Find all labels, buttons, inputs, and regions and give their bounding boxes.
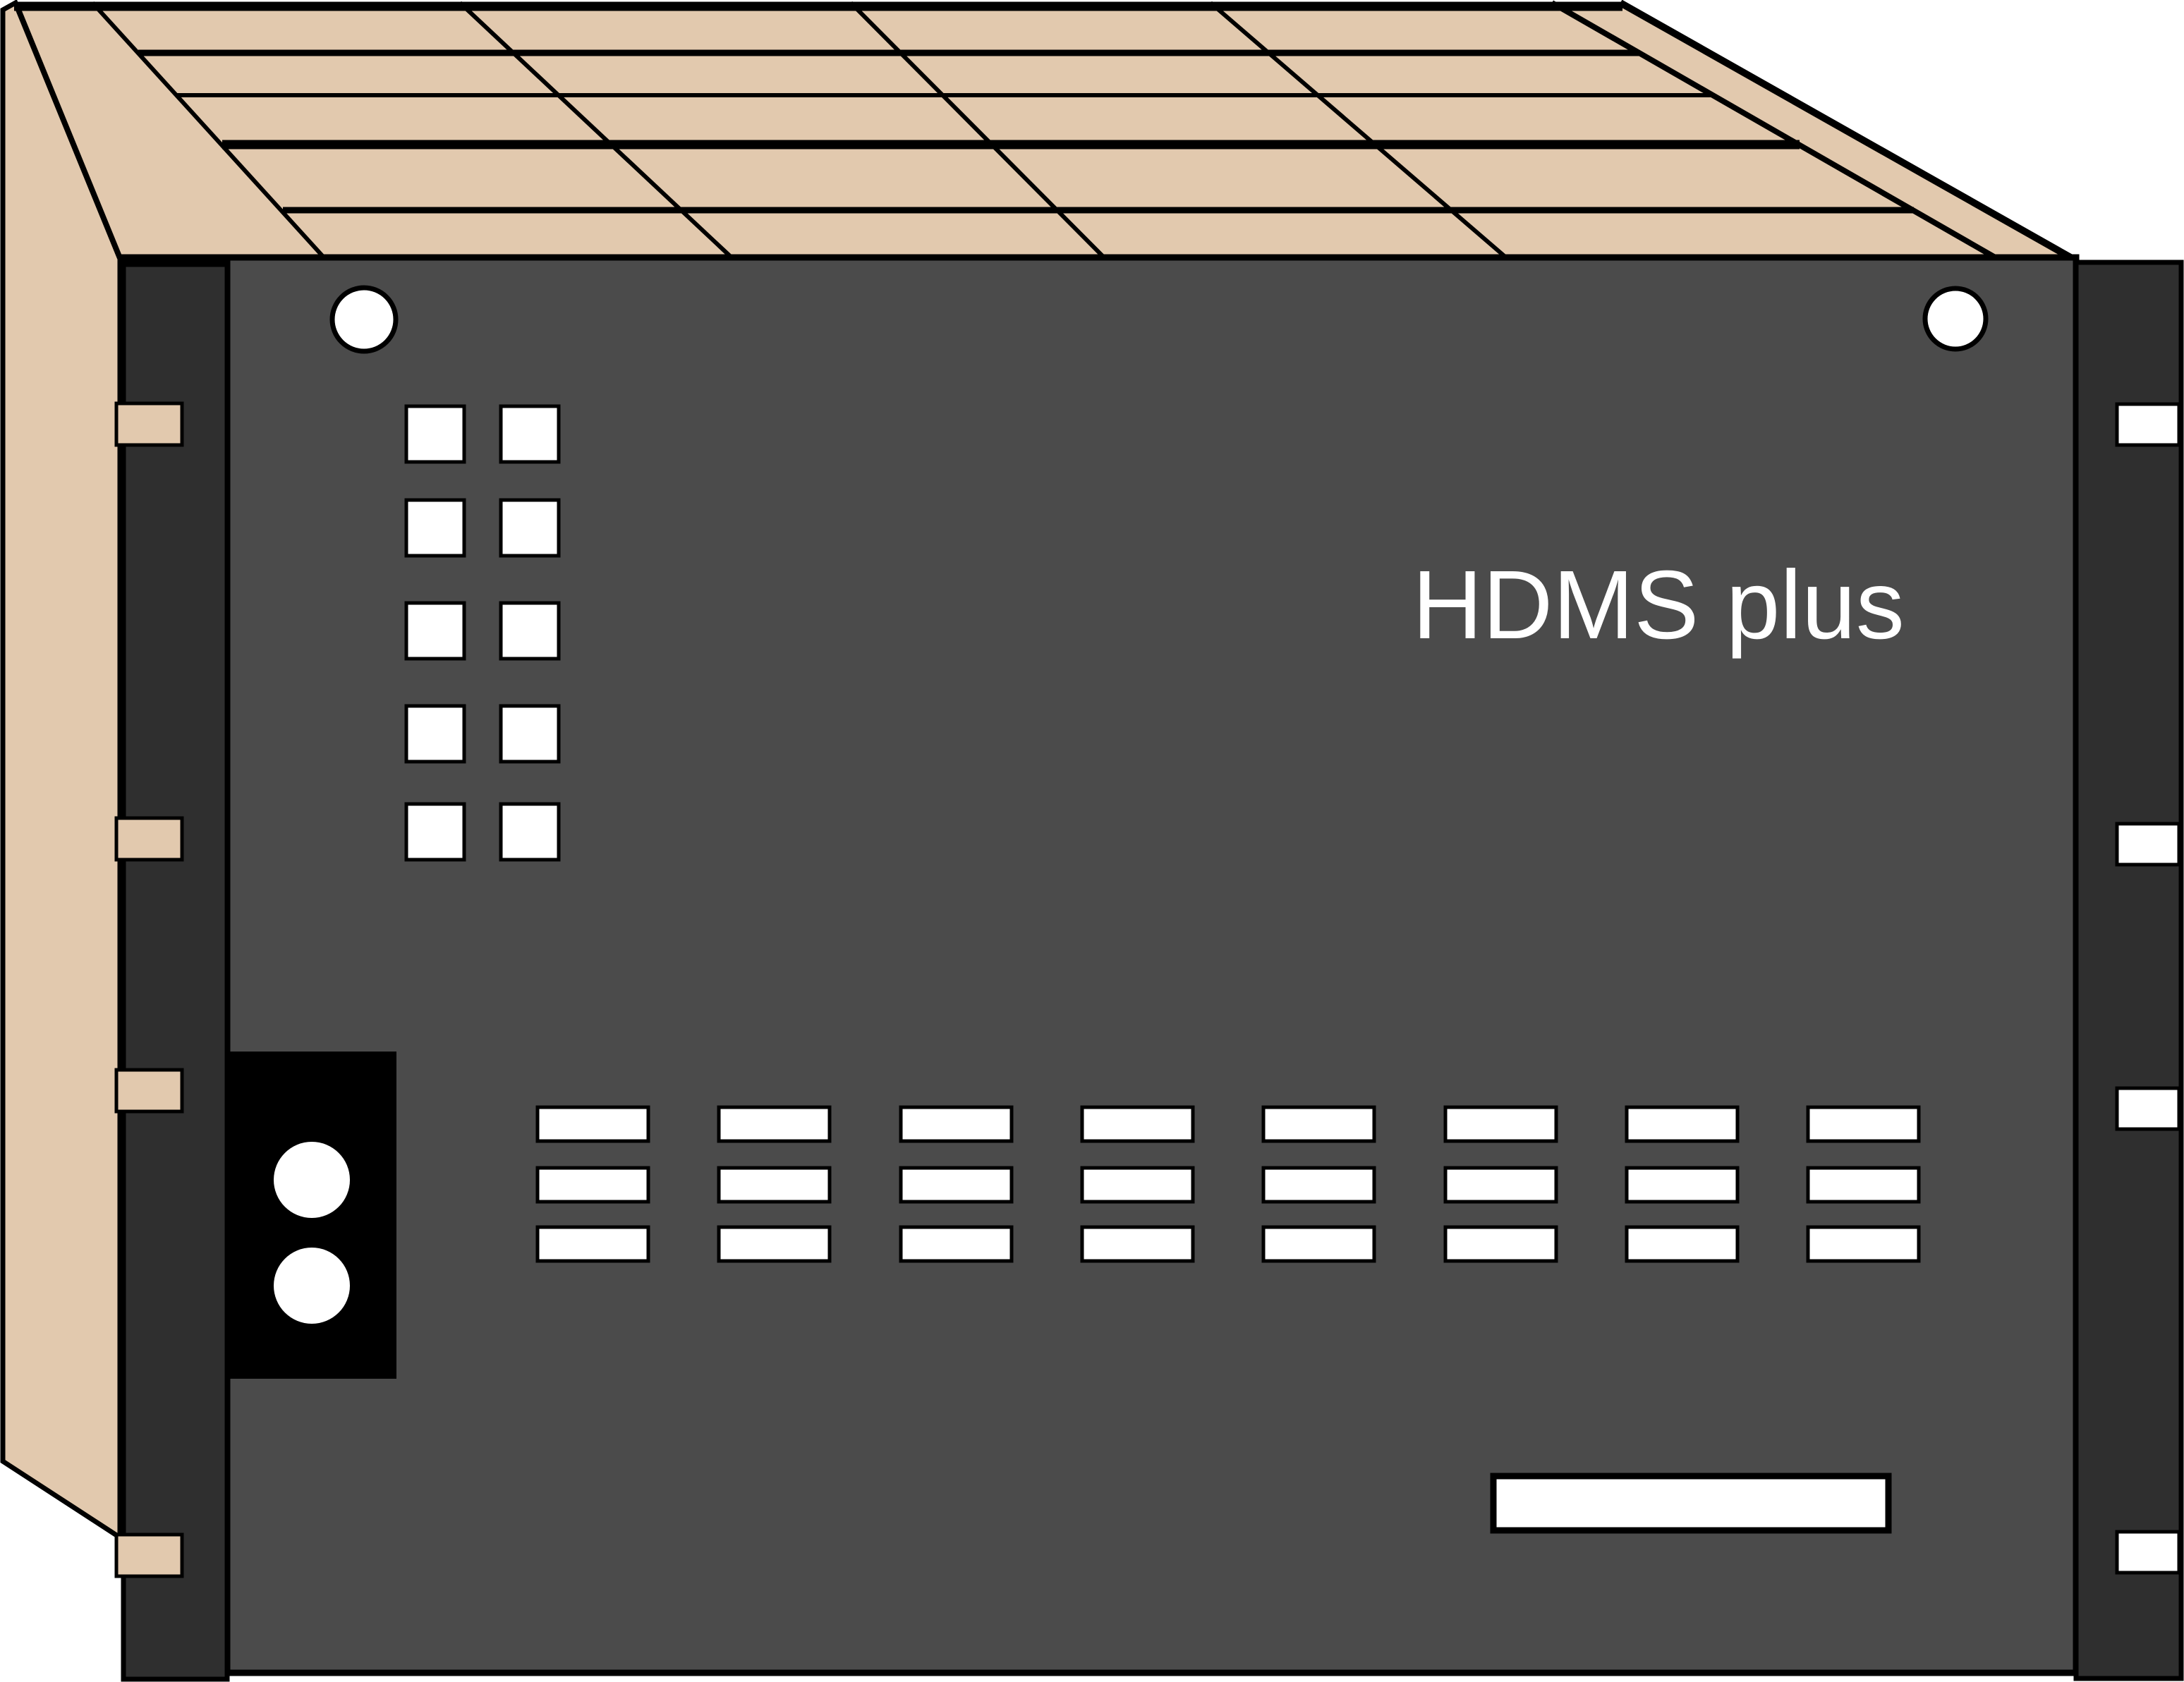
vent-slot-r1-c3 <box>901 1107 1012 1141</box>
vent-slot-r3-c7 <box>1627 1227 1737 1261</box>
right-rail-notch-3 <box>2117 1088 2179 1129</box>
right-rail-notch-2 <box>2117 824 2179 865</box>
square-hole-r3-c1 <box>406 603 464 659</box>
square-hole-r3-c2 <box>501 603 559 659</box>
vent-slot-r2-c2 <box>719 1168 830 1202</box>
vent-slot-r1-c8 <box>1808 1107 1919 1141</box>
left-mounting-rail <box>123 264 227 1679</box>
vent-slot-r3-c4 <box>1082 1227 1193 1261</box>
vent-slot-r3-c3 <box>901 1227 1012 1261</box>
vent-slot-r3-c2 <box>719 1227 830 1261</box>
chassis-side-face <box>3 3 120 1537</box>
left-rail-notch-2 <box>116 818 182 860</box>
vent-slot-r2-c4 <box>1082 1168 1193 1202</box>
vent-slot-r3-c5 <box>1263 1227 1374 1261</box>
bottom-panel-slot <box>1493 1476 1888 1530</box>
vent-slot-r1-c7 <box>1627 1107 1737 1141</box>
vent-slot-r2-c3 <box>901 1168 1012 1202</box>
connector-hole-2 <box>274 1248 350 1324</box>
vent-slot-r3-c1 <box>538 1227 648 1261</box>
vent-slot-r3-c6 <box>1445 1227 1556 1261</box>
left-rail-notch-3 <box>116 1070 182 1111</box>
vent-slot-r1-c1 <box>538 1107 648 1141</box>
square-hole-r4-c1 <box>406 706 464 762</box>
vent-slot-r2-c6 <box>1445 1168 1556 1202</box>
vent-slot-r1-c5 <box>1263 1107 1374 1141</box>
connector-hole-1 <box>274 1142 350 1218</box>
device-drawing-canvas: HDMS plus <box>0 0 2184 1682</box>
square-hole-r2-c2 <box>501 500 559 556</box>
square-hole-r1-c1 <box>406 406 464 462</box>
right-mounting-rail <box>2076 262 2181 1678</box>
vent-slot-r2-c8 <box>1808 1168 1919 1202</box>
panel-screw-hole-2 <box>1925 288 1986 349</box>
vent-slot-r1-c2 <box>719 1107 830 1141</box>
square-hole-r5-c1 <box>406 804 464 860</box>
device-label: HDMS plus <box>1412 551 1905 659</box>
vent-slot-r2-c1 <box>538 1168 648 1202</box>
vent-slot-r2-c7 <box>1627 1168 1737 1202</box>
square-hole-r1-c2 <box>501 406 559 462</box>
right-rail-notch-1 <box>2117 404 2179 445</box>
hdms-plus-illustration: HDMS plus <box>0 0 2184 1682</box>
right-rail-notch-4 <box>2117 1532 2179 1573</box>
vent-slot-r1-c6 <box>1445 1107 1556 1141</box>
front-panel <box>227 257 2076 1673</box>
vent-slot-r3-c8 <box>1808 1227 1919 1261</box>
square-hole-r4-c2 <box>501 706 559 762</box>
panel-screw-hole-1 <box>332 288 396 351</box>
square-hole-r2-c1 <box>406 500 464 556</box>
vent-slot-r2-c5 <box>1263 1168 1374 1202</box>
square-hole-r5-c2 <box>501 804 559 860</box>
left-rail-notch-4 <box>116 1535 182 1576</box>
vent-slot-r1-c4 <box>1082 1107 1193 1141</box>
left-rail-notch-1 <box>116 403 182 445</box>
